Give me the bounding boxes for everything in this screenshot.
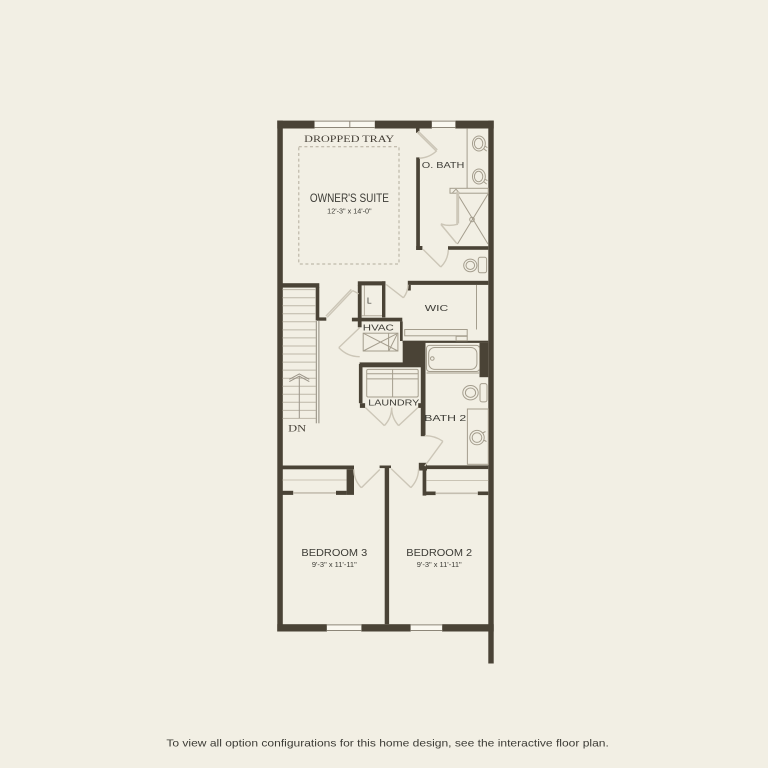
svg-text:DN: DN: [288, 423, 306, 434]
svg-text:OWNER'S SUITE: OWNER'S SUITE: [310, 191, 389, 205]
svg-text:L: L: [367, 296, 372, 306]
svg-text:DROPPED TRAY: DROPPED TRAY: [304, 134, 394, 145]
svg-text:9'-3" x 11'-11": 9'-3" x 11'-11": [312, 562, 357, 569]
svg-text:To view all option configurati: To view all option configurations for th…: [166, 739, 609, 750]
svg-text:LAUNDRY: LAUNDRY: [368, 397, 419, 407]
svg-text:BATH 2: BATH 2: [424, 413, 466, 423]
svg-text:BEDROOM 2: BEDROOM 2: [406, 548, 472, 559]
svg-text:WIC: WIC: [425, 303, 449, 313]
svg-text:12'-3" x 14'-0": 12'-3" x 14'-0": [327, 207, 372, 215]
svg-text:HVAC: HVAC: [363, 323, 394, 332]
svg-text:9'-3" x 11'-11": 9'-3" x 11'-11": [417, 562, 462, 569]
svg-text:BEDROOM 3: BEDROOM 3: [301, 548, 367, 559]
svg-text:O. BATH: O. BATH: [422, 160, 465, 170]
